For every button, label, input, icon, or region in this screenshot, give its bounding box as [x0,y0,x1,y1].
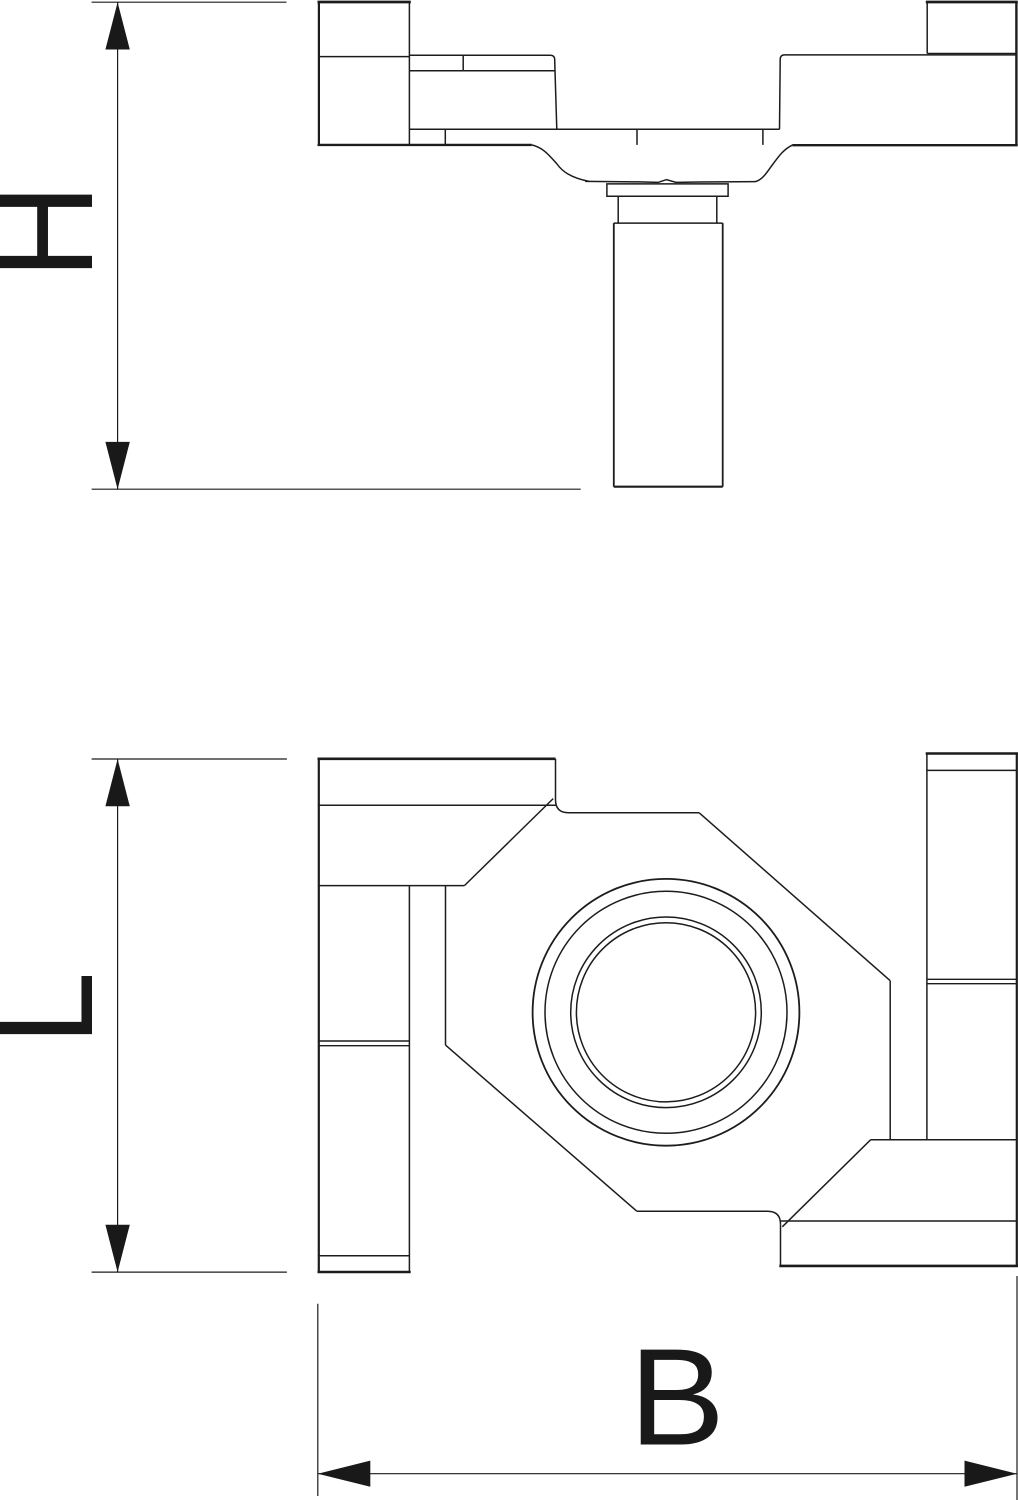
svg-text:H: H [0,184,122,279]
svg-text:L: L [0,972,122,1045]
svg-text:B: B [629,1319,725,1473]
